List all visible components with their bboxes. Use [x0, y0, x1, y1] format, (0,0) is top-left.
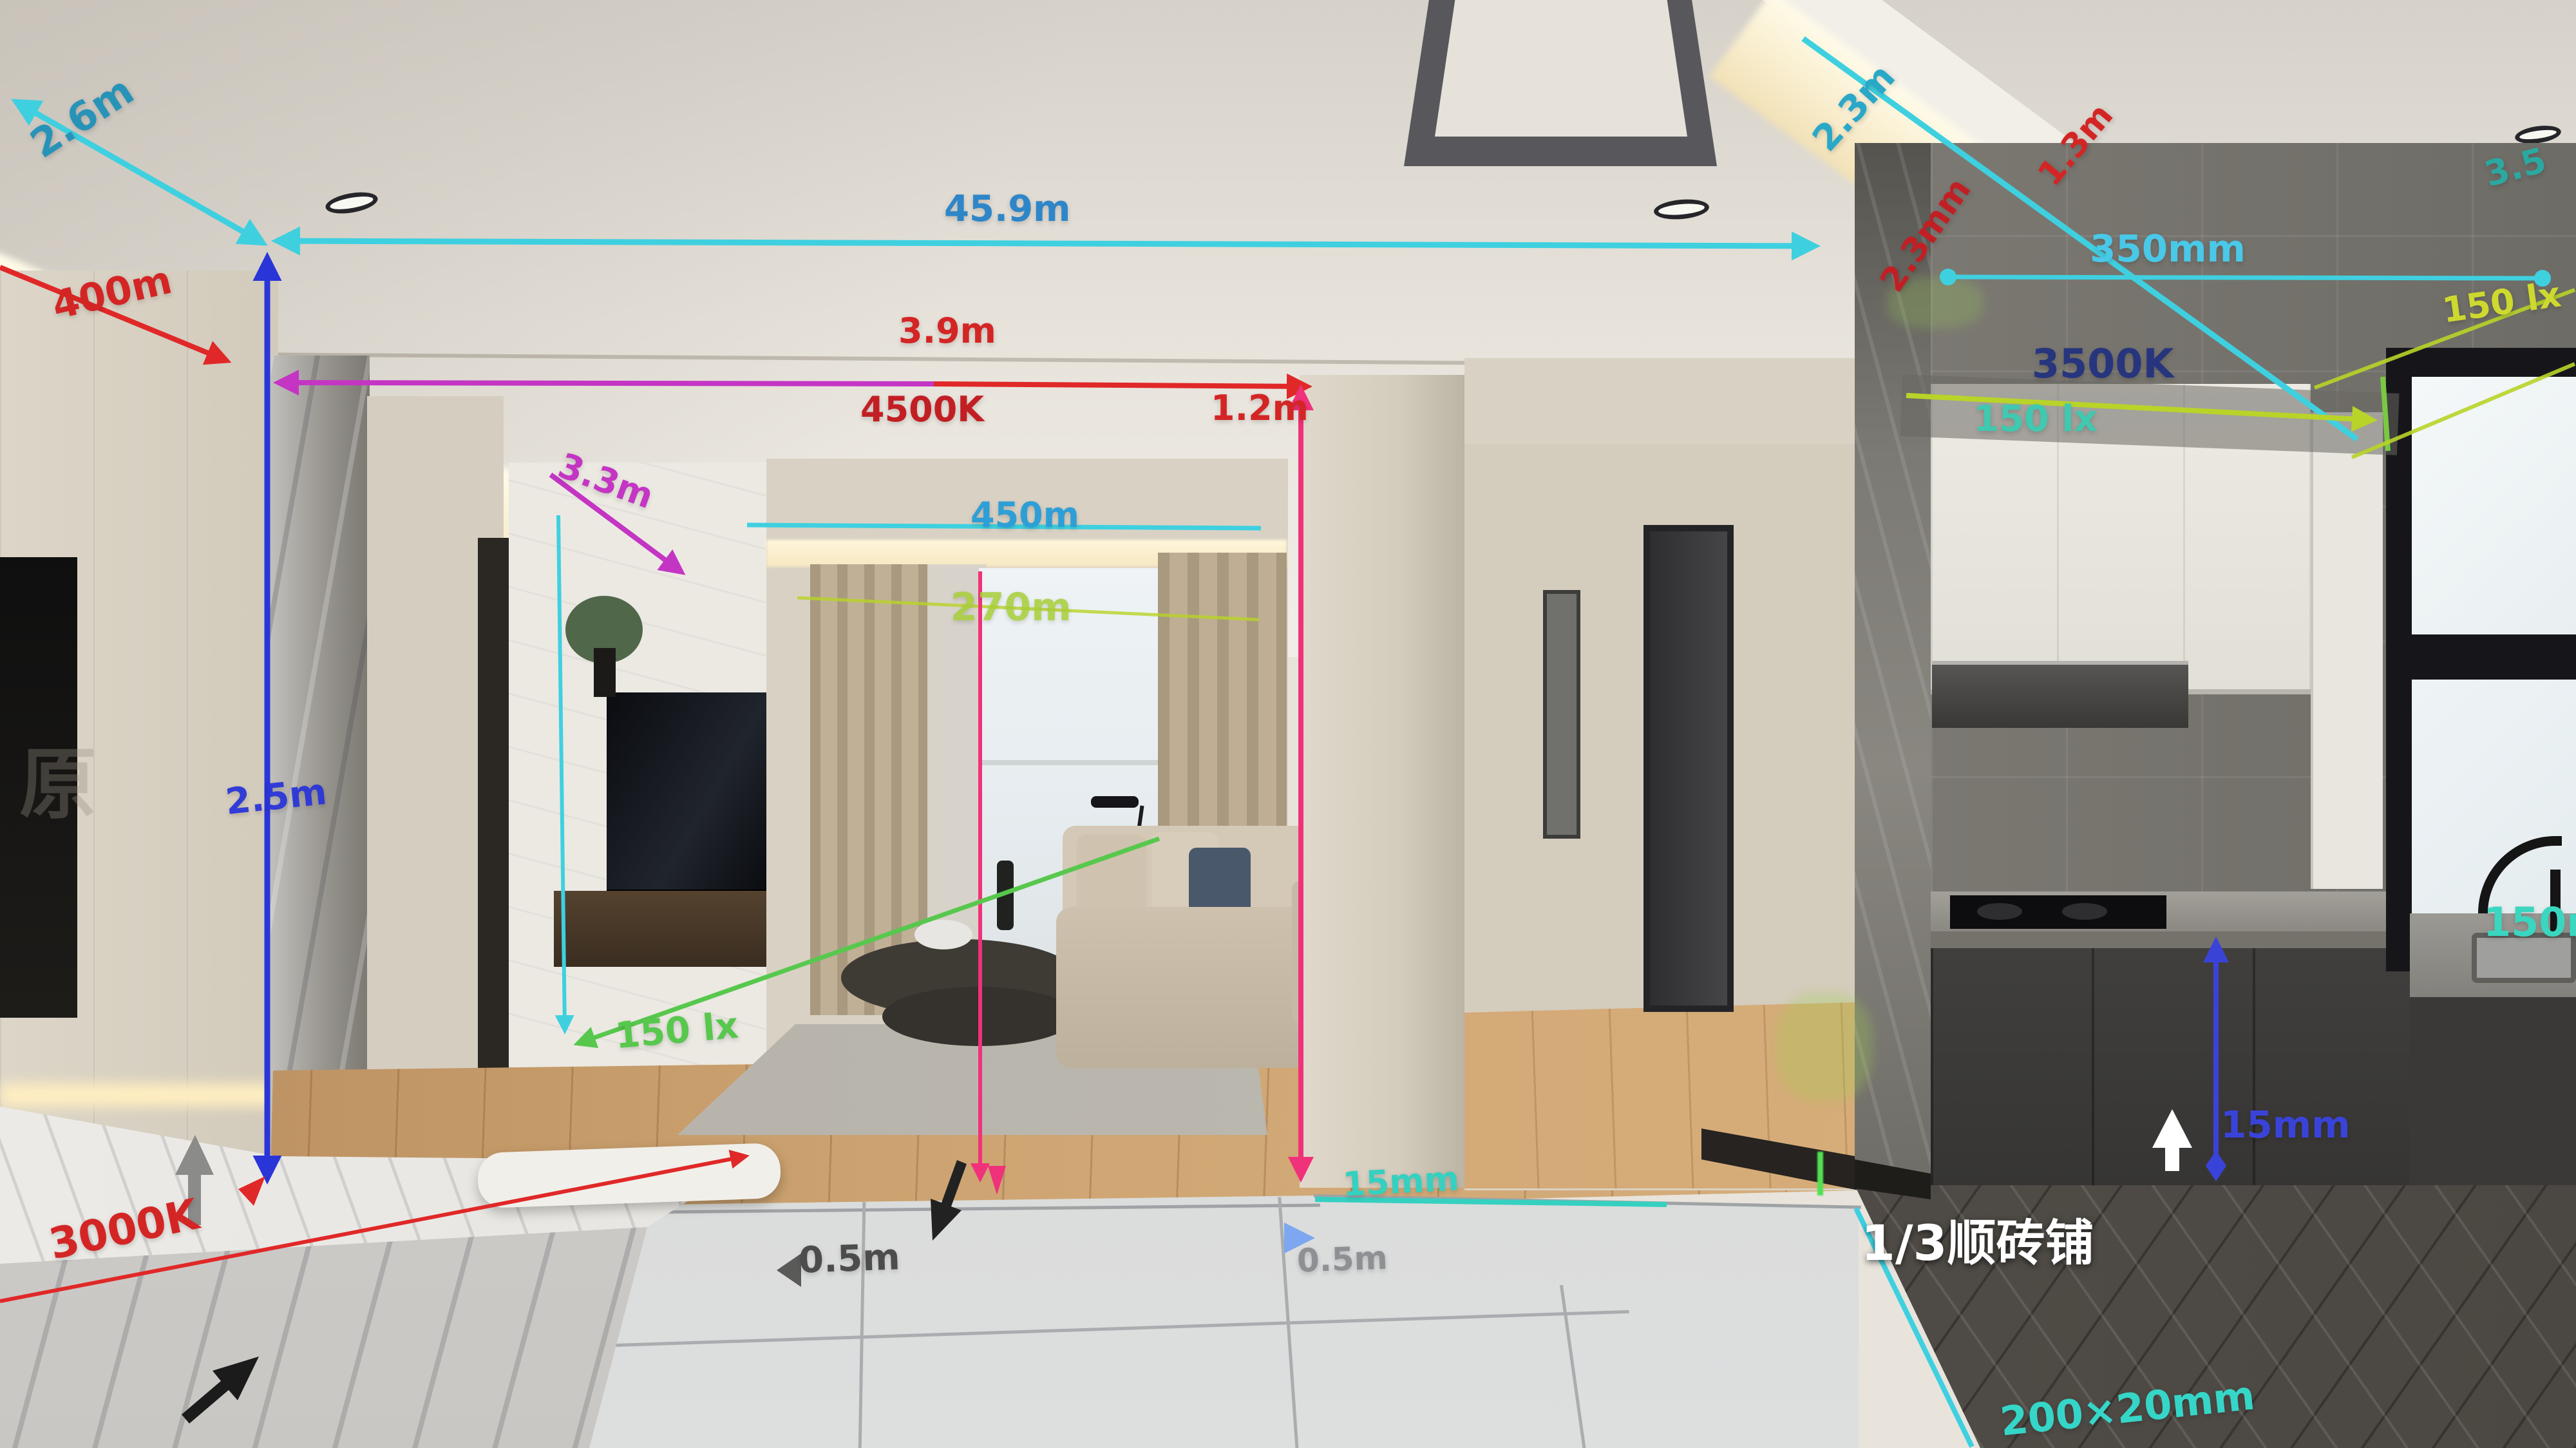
red-arrow-icon	[238, 1176, 265, 1206]
dim-label-150mm: 150mm	[2483, 899, 2576, 946]
pink-arrow-icon	[988, 1166, 1006, 1195]
label-150lx-cabinet: 150 lx	[1974, 398, 2098, 440]
dim-line-350mm	[1948, 277, 2543, 278]
dim-label-350mm: 350mm	[2090, 227, 2246, 271]
dim-label-3-9m: 3.9m	[898, 310, 996, 351]
dim-label-0-5m-far: 0.5m	[1296, 1239, 1388, 1280]
dim-dot-icon	[1940, 269, 1956, 285]
dim-tick-green	[2383, 377, 2388, 451]
dim-label-15mm-floor: 15mm	[1342, 1159, 1461, 1204]
dim-label-45-9m: 45.9m	[944, 188, 1071, 230]
dim-line-3-9m-right	[934, 384, 1307, 386]
blue-diamond-icon	[2206, 1150, 2226, 1181]
dim-label-450m: 450m	[971, 495, 1079, 535]
label-3500k: 3500K	[2032, 340, 2174, 387]
label-4500k: 4500K	[860, 389, 984, 430]
dim-label-1-2m: 1.2m	[1211, 388, 1309, 428]
black-down-arrow-icon	[931, 1160, 967, 1241]
black-arrow-icon	[182, 1357, 259, 1424]
dim-line-3-9m-left	[278, 383, 934, 384]
dim-label-270m: 270m	[951, 585, 1072, 630]
white-up-arrow-icon	[2152, 1109, 2192, 1171]
dim-label-0-5m-near: 0.5m	[798, 1236, 901, 1281]
small-dark-arrow-icon	[777, 1253, 801, 1287]
annotation-lines-layer	[0, 0, 2576, 1448]
dim-label-15mm-kitchen: 15mm	[2221, 1103, 2351, 1147]
dim-line-45-9m	[277, 241, 1815, 246]
tile-layout-note: 1/3顺砖铺	[1861, 1203, 2094, 1274]
annotated-interior-rendering: 原	[0, 0, 2576, 1448]
dim-line-wall-drop	[558, 515, 565, 1031]
